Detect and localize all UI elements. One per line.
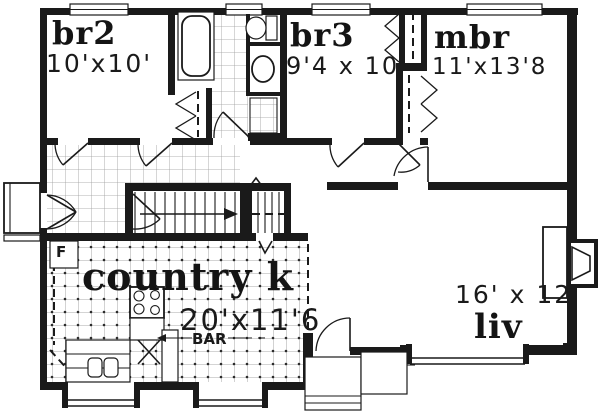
room-dims-br3: 9'4 x 10' xyxy=(286,52,408,80)
front-porch xyxy=(4,183,40,241)
bath-window xyxy=(226,4,262,15)
toilet xyxy=(246,16,277,40)
mbr-closet-bifold xyxy=(421,76,437,132)
mbr-window xyxy=(467,4,542,15)
room-label-br2: br2 xyxy=(52,14,117,52)
linen-closet-floor xyxy=(250,98,277,133)
room-label-living: liv xyxy=(474,307,523,347)
living-room-window xyxy=(406,344,529,364)
room-dims-mbr: 11'x13'8 xyxy=(432,54,547,80)
room-label-mbr: mbr xyxy=(434,18,510,56)
bathtub xyxy=(178,12,214,80)
mbr-door xyxy=(394,143,428,182)
entry-floor xyxy=(47,183,125,233)
hall-floor xyxy=(47,145,240,183)
bathroom-sink xyxy=(252,56,274,82)
entry-closet-door xyxy=(133,194,160,229)
room-dims-br2: 10'x10' xyxy=(46,49,152,78)
floor-plan: br2 10'x10' br3 9'4 x 10' mbr 11'x13'8 c… xyxy=(0,0,600,417)
stove-cabinet xyxy=(130,318,164,340)
kitchen-window-bay-right xyxy=(193,382,268,408)
back-porch xyxy=(305,352,415,410)
br3-door xyxy=(330,143,364,167)
kitchen-window-bay-left xyxy=(62,382,140,408)
room-label-br3: br3 xyxy=(290,16,355,54)
stair-arrow-head xyxy=(224,208,238,220)
room-dims-living: 16' x 12' xyxy=(455,280,581,309)
basement-stair xyxy=(258,192,279,233)
bar-label: BAR xyxy=(192,330,227,348)
floor-plan-drawing: br2 10'x10' br3 9'4 x 10' mbr 11'x13'8 c… xyxy=(0,0,600,417)
room-label-kitchen: country k xyxy=(82,254,294,299)
br2-closet-bifold xyxy=(176,92,196,140)
furnace-label: F xyxy=(56,243,66,261)
br3-window xyxy=(312,4,370,15)
